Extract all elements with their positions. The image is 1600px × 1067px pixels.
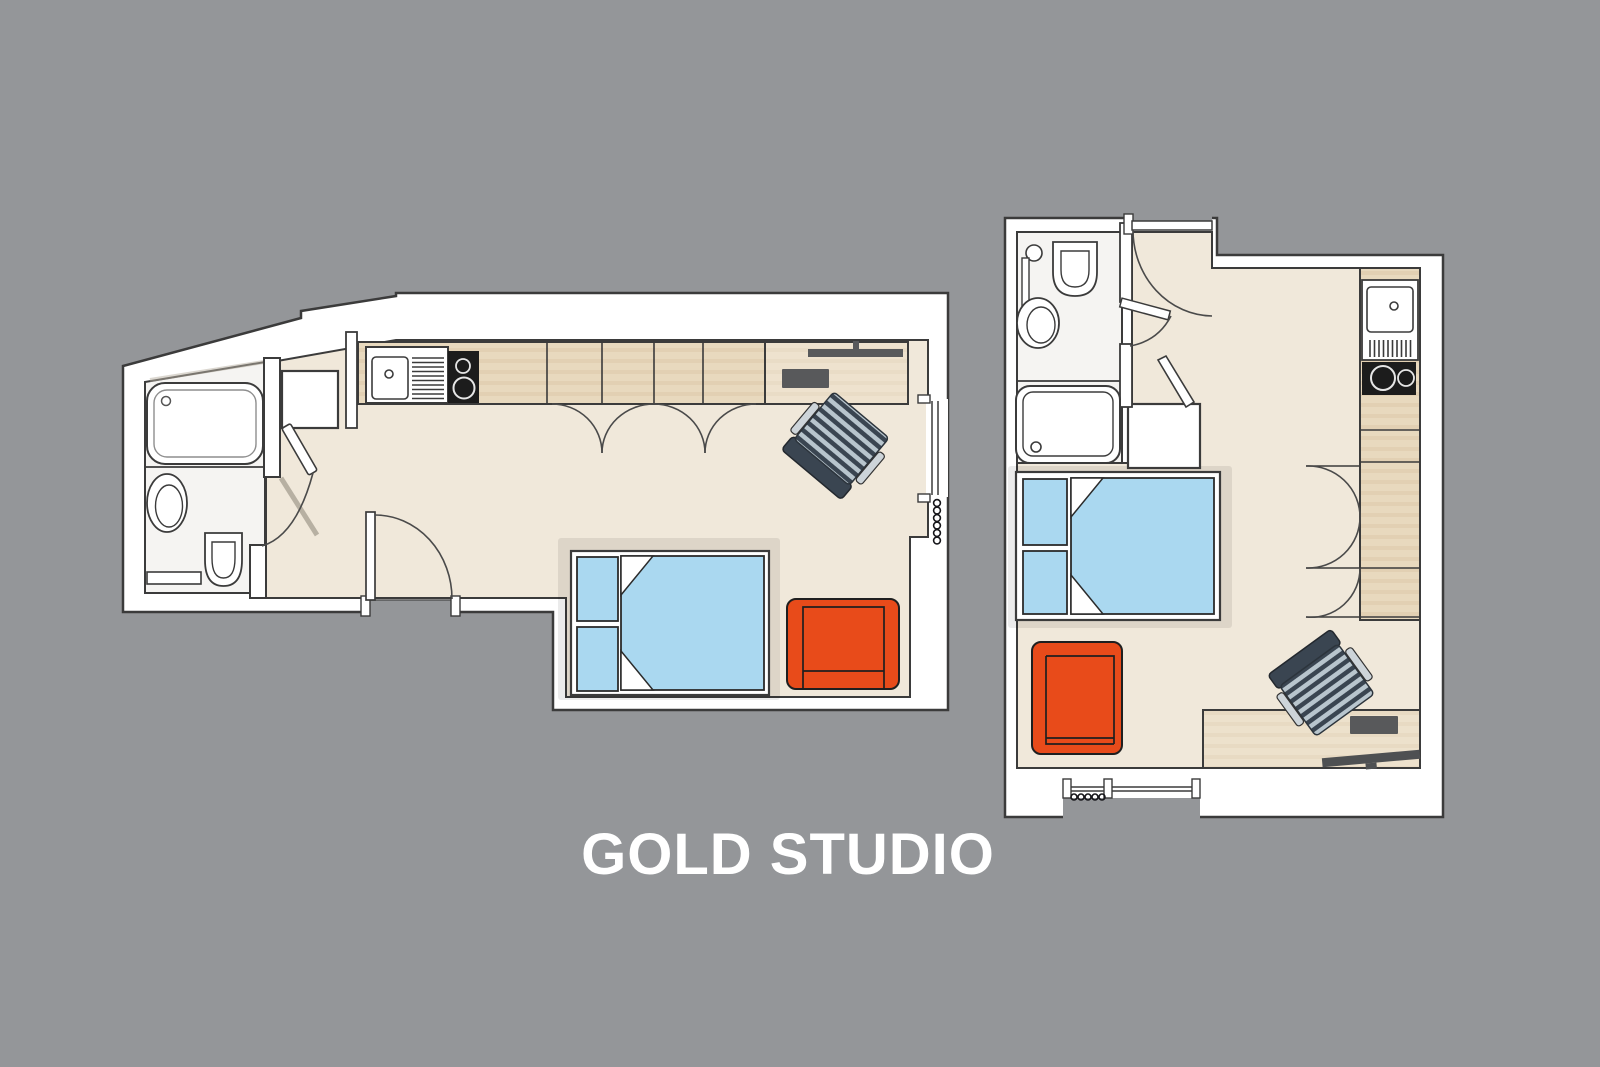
pillow	[1023, 551, 1067, 614]
kitchen-sink	[366, 347, 448, 403]
toilet	[205, 533, 242, 586]
armchair	[787, 599, 899, 689]
kitchen-sink	[1362, 280, 1418, 360]
drain-icon	[1031, 442, 1041, 452]
door-leaf	[366, 512, 375, 600]
washbasin	[147, 474, 187, 532]
drain-icon	[1390, 302, 1398, 310]
bathtub	[147, 383, 263, 464]
shower	[1016, 386, 1120, 463]
pillow	[1023, 479, 1067, 545]
bathroom-wall	[264, 358, 280, 477]
bathroom-wall	[250, 545, 266, 598]
pillow	[577, 627, 618, 691]
duvet	[1071, 478, 1214, 614]
door-leaf	[1132, 221, 1212, 230]
hob-icon	[448, 351, 479, 403]
washbasin	[1017, 298, 1059, 348]
duvet	[621, 556, 764, 690]
bathroom-shelf	[147, 572, 201, 584]
bathroom-wall	[1120, 223, 1132, 302]
closet	[1128, 404, 1200, 468]
page: GOLD STUDIO	[0, 0, 1600, 1067]
hob-icon	[1362, 362, 1416, 395]
wall-stub	[346, 332, 357, 428]
pillow	[577, 557, 618, 621]
faucet-icon	[162, 397, 171, 406]
double-bed	[1008, 466, 1232, 628]
drain-icon	[385, 370, 393, 378]
floorplan-right	[1005, 214, 1443, 819]
armchair	[1032, 642, 1122, 754]
bathroom-wall	[1120, 344, 1132, 407]
closet	[282, 371, 338, 428]
double-bed	[558, 538, 780, 700]
floorplan-canvas: GOLD STUDIO	[0, 0, 1600, 1067]
page-title: GOLD STUDIO	[581, 822, 995, 887]
